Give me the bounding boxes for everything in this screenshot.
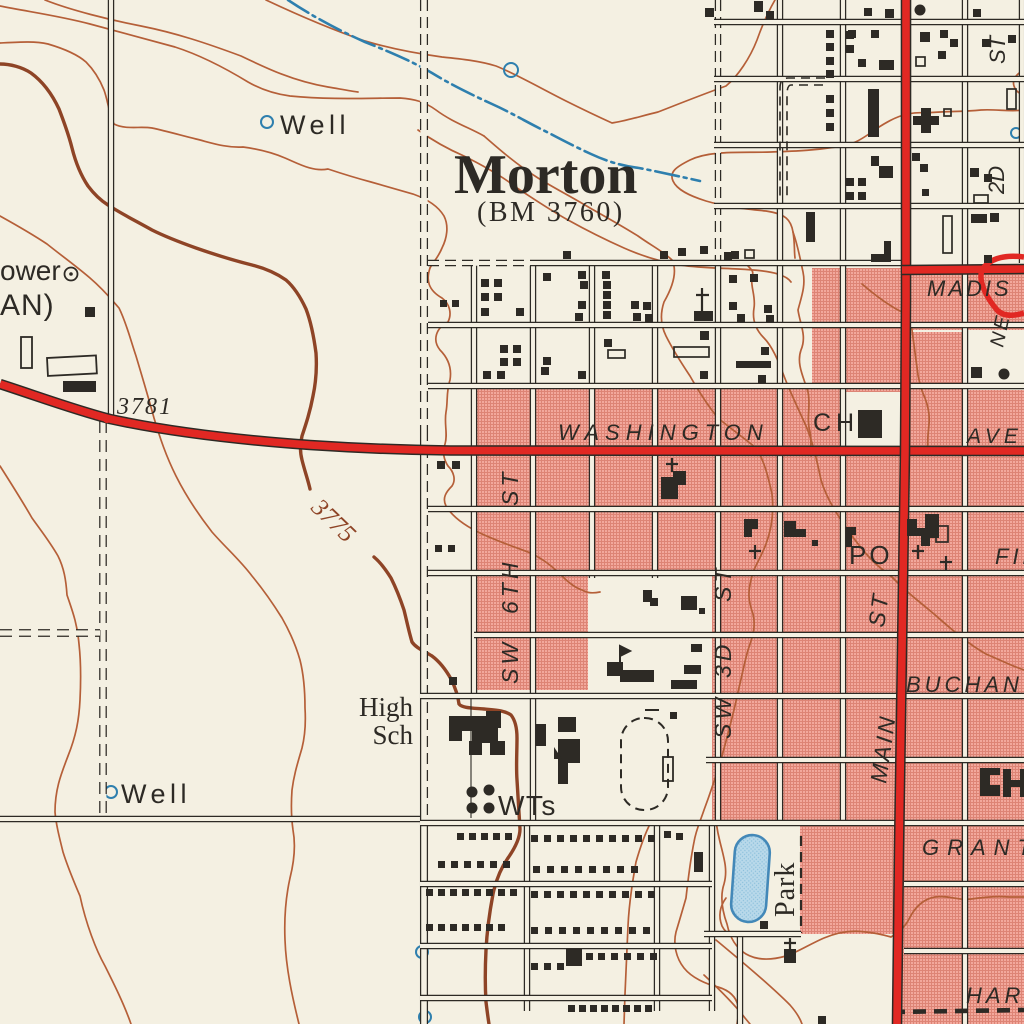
svg-text:Sch: Sch bbox=[373, 720, 414, 750]
svg-text:Well: Well bbox=[121, 779, 191, 809]
svg-text:(BM 3760): (BM 3760) bbox=[477, 197, 625, 228]
svg-text:WASHINGTON: WASHINGTON bbox=[558, 420, 769, 445]
svg-text:CH: CH bbox=[813, 409, 859, 437]
svg-text:6TH: 6TH bbox=[497, 559, 523, 614]
svg-text:ower: ower bbox=[0, 255, 61, 286]
svg-text:Park: Park bbox=[770, 862, 801, 917]
svg-text:AN): AN) bbox=[0, 289, 55, 322]
svg-text:BUCHAN: BUCHAN bbox=[906, 672, 1023, 697]
svg-text:3D: 3D bbox=[710, 641, 736, 678]
svg-text:Well: Well bbox=[280, 110, 350, 140]
svg-text:HARR: HARR bbox=[966, 983, 1024, 1008]
svg-text:2D: 2D bbox=[984, 166, 1009, 195]
svg-text:ST: ST bbox=[710, 565, 736, 602]
svg-text:ST: ST bbox=[497, 469, 523, 506]
svg-text:GRANT: GRANT bbox=[922, 835, 1024, 860]
svg-text:PO: PO bbox=[849, 540, 893, 570]
svg-text:MADIS: MADIS bbox=[927, 276, 1012, 301]
svg-text:WTs: WTs bbox=[498, 790, 557, 821]
svg-text:AVE: AVE bbox=[965, 425, 1023, 448]
svg-text:SW: SW bbox=[710, 694, 736, 739]
svg-text:FIL: FIL bbox=[995, 544, 1024, 569]
svg-text:High: High bbox=[359, 692, 414, 722]
svg-text:3781: 3781 bbox=[116, 394, 173, 420]
svg-text:SW: SW bbox=[497, 639, 523, 684]
svg-text:ST: ST bbox=[985, 34, 1010, 64]
svg-text:ST: ST bbox=[863, 590, 894, 629]
